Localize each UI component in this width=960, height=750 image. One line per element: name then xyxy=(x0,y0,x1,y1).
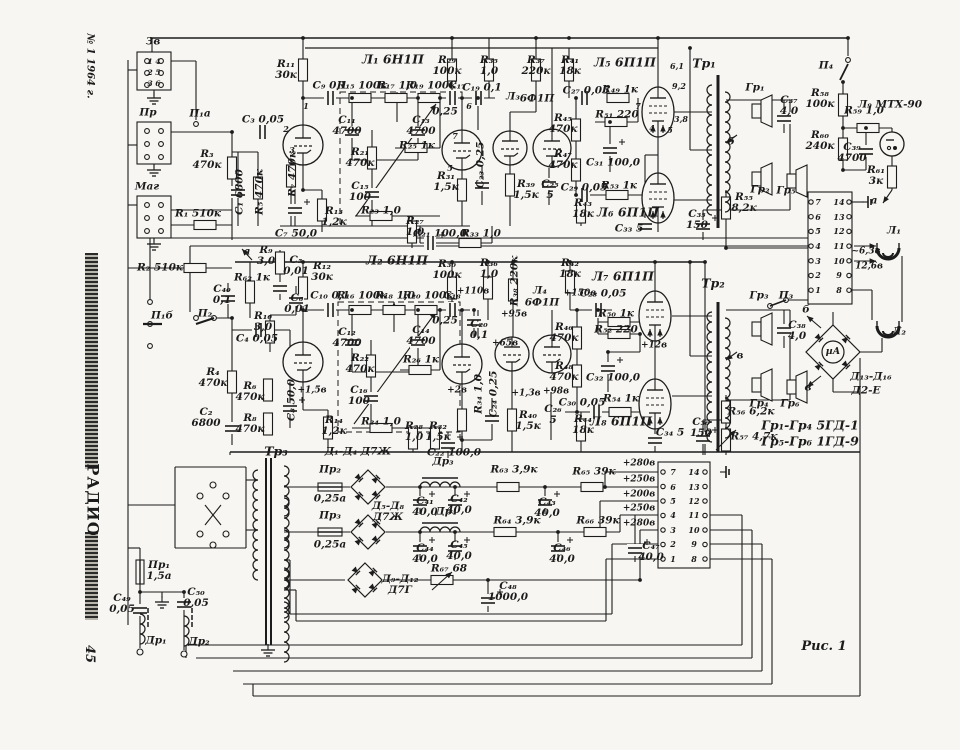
label-r63: R₆₃ 3,9к xyxy=(491,464,538,475)
label-p1a: П₁а xyxy=(189,108,210,119)
label-c37: С₃₇ 4,0 xyxy=(780,95,798,117)
label-pr1: Пр₁ 1,5а xyxy=(146,560,171,582)
label-c3: С₃ 0,05 xyxy=(242,114,284,125)
label-tap-b2: б xyxy=(802,304,810,315)
label-c11: С₁₁ 4700 xyxy=(332,115,361,137)
label-c18: С₁₈ xyxy=(443,290,461,301)
label-zv-pins-1: 1 4 xyxy=(147,58,160,66)
label-r33: R₃₃ 1,0 xyxy=(461,228,501,239)
label-c30: С₃₀ 0,05 xyxy=(559,397,606,408)
label-r10: R₁₀ 3,0 xyxy=(254,311,272,333)
label-v-250b: +250в xyxy=(623,504,655,513)
label-gr3: Гр₃ xyxy=(749,290,768,301)
label-r53: R₅₃ 1к xyxy=(601,180,637,191)
label-r34: R₃₄ 1,0 xyxy=(473,374,484,414)
label-gr-note-2: Гр₅-Гр₆ 1ГД-9 xyxy=(761,434,859,447)
label-c15: С₁₅ 100 xyxy=(349,181,371,203)
label-c5: С₅ 0,01 xyxy=(283,255,309,277)
label-pinb-10: 10 xyxy=(688,526,699,534)
label-r14: R₁₄ 1,2к xyxy=(321,415,346,437)
label-r16: R₁₆ 100к xyxy=(337,290,388,301)
label-pinb-14: 14 xyxy=(688,468,699,476)
label-tube-l8: Л₈ 6П1П xyxy=(590,414,652,427)
label-v-plus110: +110в xyxy=(457,287,489,296)
label-tube-l4: Л₄ xyxy=(533,285,547,296)
label-r47: R₄₇ 470к xyxy=(548,149,577,171)
label-pinb-6: 6 xyxy=(670,483,676,491)
label-tube-l1: Л₁ 6Н1П xyxy=(362,52,424,65)
label-c26: С₂₆ 5 xyxy=(544,404,562,426)
label-c22: С₂₂ 100,0 xyxy=(427,447,481,458)
label-r24: R₂₄ 1,0 xyxy=(361,416,401,427)
label-l1-pin6: 6 xyxy=(466,102,472,110)
label-c4: С₄ 0,05 xyxy=(236,333,278,344)
label-dr2: Др₂ xyxy=(188,636,209,647)
label-tube-l3-type: 6Ф1П xyxy=(520,93,555,104)
label-c47: С₄₇ 40,0 xyxy=(638,541,664,563)
label-r60: R₆₀ 240к xyxy=(805,130,834,152)
label-c42: С₄₂ 40,0 xyxy=(446,494,472,516)
label-pinm-13: 13 xyxy=(833,213,844,221)
label-dr4: Др₄ xyxy=(435,506,456,517)
label-point-a2: а xyxy=(871,195,878,206)
label-r59: R₅₉ 1,0 xyxy=(844,105,884,116)
label-r22: R₂₂ 470к xyxy=(345,353,374,375)
label-l1-pin3: 3 xyxy=(289,146,295,154)
label-c41: С₄₁ 40,0 xyxy=(412,496,438,518)
label-gr4: Гр₄ xyxy=(749,398,768,409)
label-r36: R₃₆ 1,0 xyxy=(480,258,498,280)
label-zv-pins-3: 3 6 xyxy=(147,80,160,88)
label-tr1: Тр₁ xyxy=(692,56,716,69)
label-r45: R₄₅ 470к xyxy=(548,113,577,135)
label-r66: R₆₆ 39к xyxy=(576,515,619,526)
label-gr-note-1: Гр₁-Гр₄ 5ГД-1 xyxy=(761,418,859,431)
label-c12: С₁₂ 4700 xyxy=(332,327,361,349)
label-pr2: Пр₂ xyxy=(319,464,341,475)
label-r25: R₂₅ 1к xyxy=(399,140,435,151)
label-zv-pins-2: 2 5 xyxy=(147,69,160,77)
label-r31: R₃₁ 1,5к xyxy=(433,171,458,193)
label-p4: П₄ xyxy=(819,60,834,71)
label-v-heater126: 12,6в xyxy=(855,262,883,271)
label-pinm-7: 7 xyxy=(815,198,821,206)
label-r29: R₂₉ 100к xyxy=(432,55,461,77)
label-r56: R₅₆ 6,2к xyxy=(728,406,775,417)
label-pinb-5: 5 xyxy=(670,497,676,505)
label-point-a1: а xyxy=(244,246,251,257)
label-pr3: Пр₃ xyxy=(319,510,341,521)
label-c23: С₂₃ 0,25 xyxy=(475,142,486,189)
label-l5-pin4: 4 xyxy=(649,124,655,132)
label-d5-8: Д₅-Д₈ Д7Ж xyxy=(372,501,404,523)
label-tube-l2: Л₂ 6Н1П xyxy=(366,253,428,266)
label-r38: R₃₈ 220к xyxy=(509,256,520,307)
label-r26: R₂₆ 1к xyxy=(403,354,439,365)
label-pinb-3: 3 xyxy=(670,526,676,534)
label-masthead: РАДИО xyxy=(84,463,101,536)
label-page-number: 45 xyxy=(82,645,96,663)
label-c19: С₁₉ 0,1 xyxy=(462,82,501,93)
label-r61: R₆₁ 3к xyxy=(867,165,885,187)
label-r30: R₃₀ 100к xyxy=(432,259,461,281)
label-tube-l6: Л₆ 6П1П xyxy=(597,205,659,218)
label-meter-ua: µА xyxy=(826,347,841,357)
label-r11: R₁₁ 30к xyxy=(275,59,297,81)
label-r18: R₁₈ 1,0 xyxy=(375,290,415,301)
label-c31: С₃₁ 100,0 xyxy=(586,157,640,168)
label-tube-l7: Л₇ 6П1П xyxy=(592,269,654,282)
label-c32: С₃₂ 100,0 xyxy=(586,372,640,383)
label-c29: С₂₉ 0,05 xyxy=(561,182,608,193)
label-r15: R₁₅ 100к xyxy=(337,80,388,91)
label-c45: С₄₅ 40,0 xyxy=(446,540,472,562)
label-r62: R₆₂ 1к xyxy=(234,272,270,283)
label-c36: С₃₆ 150 xyxy=(690,417,712,439)
label-c8: С₈ 50,0 xyxy=(286,379,297,421)
label-c24: С₂₄ 0,25 xyxy=(488,371,499,418)
label-tap-b1: б xyxy=(727,136,735,147)
label-lamp-l1: Л₁ xyxy=(887,225,901,236)
label-r2: R₂ 510к xyxy=(137,262,183,273)
label-dr3: Др₃ xyxy=(432,456,453,467)
label-c16: С₁₆ 100 xyxy=(348,385,370,407)
label-l1-pin2: 2 xyxy=(283,125,289,133)
label-dr1: Др₁ xyxy=(145,635,166,646)
label-l1-pin7: 7 xyxy=(452,132,458,140)
label-gr6: Гр₆ xyxy=(780,398,799,409)
label-tube-l5: Л₅ 6П1П xyxy=(594,55,656,68)
label-r49: R₄₉ 1к xyxy=(602,84,638,95)
label-tube-l3: Л₃ xyxy=(506,91,520,102)
label-tr2: Тр₂ xyxy=(701,276,725,289)
label-r55: R₅₅ 8,2к xyxy=(731,192,756,214)
label-v-plus1-5: +1,5в xyxy=(297,386,326,395)
label-tube-l9: Л₉ МТХ-90 xyxy=(858,99,922,110)
label-tr3: Тр₃ xyxy=(264,444,288,457)
label-c13: С₁₃ 4700 xyxy=(406,115,435,137)
label-pinb-8: 8 xyxy=(691,555,697,563)
label-pinm-10: 10 xyxy=(833,257,844,265)
label-pinm-9: 9 xyxy=(836,271,842,279)
label-r42: R₄₂ 18к xyxy=(559,258,581,280)
label-tap-v2: в xyxy=(805,382,812,393)
label-c38: С₃₈ 4,0 xyxy=(788,320,806,342)
label-v-plus150: +150в xyxy=(564,289,596,298)
label-r8: R₈ 470к xyxy=(235,413,264,435)
label-c43: С₄₃ 40,0 xyxy=(534,497,560,519)
label-pinm-8: 8 xyxy=(836,286,842,294)
label-r51: R₅₁ 220 xyxy=(595,109,639,120)
label-r17: R₁₇ 1,0 xyxy=(377,80,417,91)
label-pinm-4: 4 xyxy=(815,242,821,250)
label-v-280a: +280в xyxy=(623,459,655,468)
label-pinb-11: 11 xyxy=(688,511,699,519)
label-l5-pin61: 6,1 xyxy=(670,62,684,70)
label-c18-val: 0,25 xyxy=(432,315,458,326)
label-p3: П₃ xyxy=(779,290,794,301)
label-r54: R₅₄ 1к xyxy=(603,393,639,404)
label-c2: С₂ 6800 xyxy=(191,407,220,429)
label-zv: Зв xyxy=(146,36,160,47)
label-r13: R₁₃ 1,2к xyxy=(321,206,346,228)
label-r48: R₄₈ 470к xyxy=(549,361,578,383)
label-r7: R₇ 470к xyxy=(287,151,298,197)
label-r28: R₂₈ 1,0 xyxy=(405,421,423,443)
label-pr-input: Пр xyxy=(139,107,156,118)
label-r19: R₁₉ 100к xyxy=(406,80,457,91)
label-pinm-11: 11 xyxy=(833,242,844,250)
label-lamp-l2: Л₂ xyxy=(892,326,906,337)
label-pinb-12: 12 xyxy=(688,497,699,505)
label-c14: С₁₄ 4700 xyxy=(406,325,435,347)
label-c6: С₆ 0,01 xyxy=(284,293,310,315)
label-r20: R₂₀ 100к xyxy=(403,290,454,301)
label-c25: С₂₅ 5 xyxy=(541,179,559,201)
label-v-plus2: +2в xyxy=(447,386,467,395)
label-pinm-1: 1 xyxy=(815,286,821,294)
label-c10: С₁₀ 0,1 xyxy=(310,290,349,301)
label-c44: С₄₄ 40,0 xyxy=(412,543,438,565)
label-r3: R₃ 470к xyxy=(192,149,221,171)
label-r44: R₄₄ 18к xyxy=(572,414,594,436)
label-c1: С₁ 6800 xyxy=(234,169,245,215)
label-l5-pin92: 9,2 xyxy=(672,82,686,90)
label-v-280b: +280в xyxy=(623,519,655,528)
label-pinm-14: 14 xyxy=(833,198,844,206)
label-c28: С₂₈ 0,05 xyxy=(580,288,627,299)
label-gr5: Гр₅ xyxy=(776,185,795,196)
label-pr2-val: 0,25а xyxy=(314,493,346,504)
label-c9: С₉ 0,1 xyxy=(313,80,348,91)
label-c40: С₄₀ 0,1 xyxy=(213,284,231,306)
label-d13-16: Д₁₃-Д₁₆ xyxy=(850,371,891,382)
label-pr3-val: 0,25а xyxy=(314,539,346,550)
label-c21: С₂₁ 100,0 xyxy=(413,228,467,239)
label-pinb-4: 4 xyxy=(670,511,676,519)
label-r23: R₂₃ 1,0 xyxy=(361,205,401,216)
label-c49: С₄₉ 0,05 xyxy=(109,593,135,615)
label-l1-pin5: 5 xyxy=(447,164,453,172)
label-r37: R₃₇ 220к xyxy=(521,55,550,77)
label-r21: R₂₁ 470к xyxy=(345,147,374,169)
label-r27: R₂₇ 1,0 xyxy=(406,216,424,238)
label-issue: № 1 1964 г. xyxy=(84,33,95,98)
label-gr1: Гр₁ xyxy=(745,82,764,93)
label-pinm-6: 6 xyxy=(815,213,821,221)
label-v-plus13: +1,3в xyxy=(511,389,540,398)
label-tube-l4-type: 6Ф1П xyxy=(525,297,560,308)
label-r35: R₃₅ 1,0 xyxy=(480,55,498,77)
label-c50: С₅₀ 0,05 xyxy=(183,587,209,609)
label-c20: С₂₀ 0,1 xyxy=(470,319,488,341)
label-r58: R₅₈ 100к xyxy=(805,88,834,110)
label-r40: R₄₀ 1,5к xyxy=(515,410,540,432)
magazine-page: № 1 1964 г.РАДИО45Рис. 1Зв1 42 53 6ПрП₁а… xyxy=(0,0,960,750)
label-c33: С₃₃ 5 xyxy=(615,223,644,234)
label-v-250a: +250в xyxy=(623,475,655,484)
label-c17: С₁₇ xyxy=(448,80,466,91)
label-pinb-7: 7 xyxy=(670,468,676,476)
label-r46: R₄₆ 470к xyxy=(549,322,578,344)
label-v-plus12: +12в xyxy=(641,341,667,350)
label-r32: R₃₂ 1,5к xyxy=(425,421,450,443)
label-r43: R₄₃ 18к xyxy=(572,198,594,220)
label-r52: R₅₂ 220 xyxy=(594,324,638,335)
label-pinb-13: 13 xyxy=(688,483,699,491)
label-c27: С₂₇ 0,05 xyxy=(563,85,610,96)
label-pinm-3: 3 xyxy=(815,257,821,265)
label-r9: R₉ 3,0 xyxy=(257,245,275,267)
label-c48: С₄₈ 1000,0 xyxy=(488,581,528,603)
label-p2: П₂ xyxy=(198,308,213,319)
label-r39: R₃₉ 1,5к xyxy=(513,179,538,201)
label-tap-v1: в xyxy=(737,350,744,361)
label-d9-12: Д₉-Д₁₂ Д7Г xyxy=(382,574,419,596)
label-c35: С₃₅ 150 xyxy=(686,209,708,231)
label-r67: R₆₇ 68 xyxy=(431,563,467,574)
label-r57: R₅₇ 4,7к xyxy=(731,431,778,442)
label-l5-pin38: 3,8 xyxy=(674,115,688,123)
label-r5: R₅ 470к xyxy=(254,169,265,215)
label-r1: R₁ 510к xyxy=(175,208,221,219)
label-r65: R₆₅ 39к xyxy=(572,466,615,477)
schematic-labels: № 1 1964 г.РАДИО45Рис. 1Зв1 42 53 6ПрП₁а… xyxy=(0,0,960,750)
label-d2e: Д2-Е xyxy=(851,385,880,396)
label-c39: С₃₉ 4700 xyxy=(837,142,866,164)
label-r41: R₄₁ 18к xyxy=(559,55,581,77)
label-pinm-5: 5 xyxy=(815,227,821,235)
label-l5-pin7: 7 xyxy=(635,102,641,110)
label-r50: R₅₀ 1к xyxy=(598,308,634,319)
label-pinm-2: 2 xyxy=(815,271,821,279)
label-figure-caption: Рис. 1 xyxy=(801,640,846,654)
label-d1-4: Д₁-Д₄ Д7Ж xyxy=(325,446,391,457)
label-r64: R₆₄ 3,9к xyxy=(494,515,541,526)
label-c46: С₄₆ 40,0 xyxy=(549,543,575,565)
label-gr2: Гр₂ xyxy=(750,184,769,195)
label-c34: С₃₄ 5 xyxy=(656,427,685,438)
label-l1-pin1: 1 xyxy=(303,102,309,110)
label-v-200: +200в xyxy=(623,490,655,499)
label-pinb-1: 1 xyxy=(670,555,676,563)
label-r12: R₁₂ 30к xyxy=(311,261,333,283)
label-l5-pin5: 5 xyxy=(667,126,673,134)
label-r4: R₄ 470к xyxy=(198,367,227,389)
label-v-plus65: +65в xyxy=(492,339,518,348)
label-v-plus95: +95в xyxy=(501,310,527,319)
label-mag: Маг xyxy=(135,181,159,192)
label-r6: R₆ 470к xyxy=(235,381,264,403)
label-pinb-2: 2 xyxy=(670,540,676,548)
label-p1b: П₁б xyxy=(151,310,173,321)
label-c7: С₇ 50,0 xyxy=(275,228,317,239)
label-pinm-12: 12 xyxy=(833,227,844,235)
label-v-plus98: +98в xyxy=(543,387,569,396)
label-pinb-9: 9 xyxy=(691,540,697,548)
label-v-heater63: ~6,3в xyxy=(851,247,880,256)
label-c17-val: 0,25 xyxy=(432,106,458,117)
